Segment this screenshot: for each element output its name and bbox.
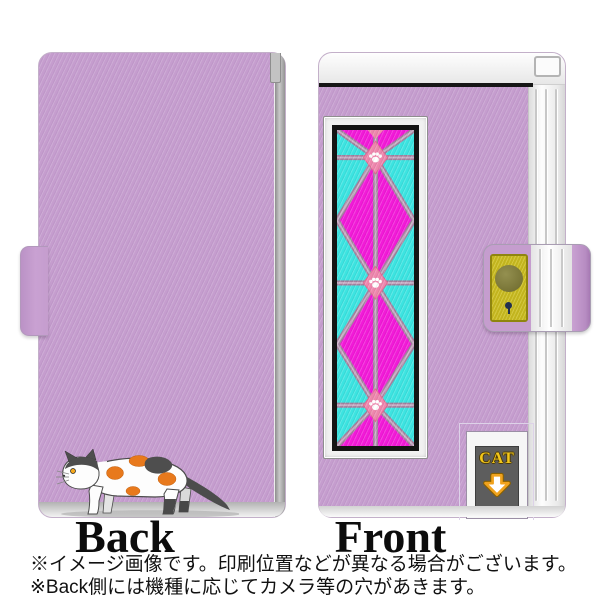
cat-door-label: CAT bbox=[476, 450, 518, 468]
hinge-notch-front bbox=[534, 56, 561, 77]
phone-case-back-cover bbox=[38, 52, 286, 518]
cat-near-front-leg bbox=[88, 485, 103, 514]
clasp-button-plate bbox=[490, 254, 528, 322]
cat-orange-patch bbox=[126, 487, 140, 496]
clasp-strap-back-view bbox=[20, 246, 48, 336]
phone-case-front-cover: CAT bbox=[318, 52, 566, 518]
cat-orange-patch bbox=[107, 467, 124, 480]
clasp-groove bbox=[561, 249, 563, 327]
window-black-frame bbox=[332, 125, 419, 451]
clasp-button bbox=[495, 265, 523, 292]
down-arrow-icon bbox=[482, 472, 512, 498]
clasp-groove bbox=[550, 249, 552, 327]
clasp-edge-section bbox=[531, 245, 572, 331]
cat-door-window: CAT bbox=[475, 446, 519, 512]
top-band-trim-line bbox=[319, 83, 533, 87]
cat-eye bbox=[71, 469, 76, 474]
clasp-strap bbox=[483, 244, 591, 332]
spine-edge bbox=[274, 53, 285, 517]
product-image-canvas: CAT Back Front ※イメージ画像です bbox=[0, 0, 600, 600]
disclaimer-note-2: ※Back側には機種に応じてカメラ等の穴があきます。 bbox=[30, 572, 485, 599]
cat-far-hind-sock bbox=[179, 501, 189, 512]
stained-glass-window bbox=[323, 116, 428, 459]
top-band bbox=[319, 53, 565, 85]
calico-cat-illustration bbox=[55, 449, 239, 519]
clasp-groove bbox=[539, 249, 541, 327]
keyhole-icon-stem bbox=[508, 307, 511, 314]
window-glass-pattern bbox=[337, 130, 414, 446]
cat-orange-patch bbox=[158, 473, 176, 486]
clasp-end-cap bbox=[572, 245, 590, 331]
hinge-notch-back bbox=[270, 53, 281, 83]
